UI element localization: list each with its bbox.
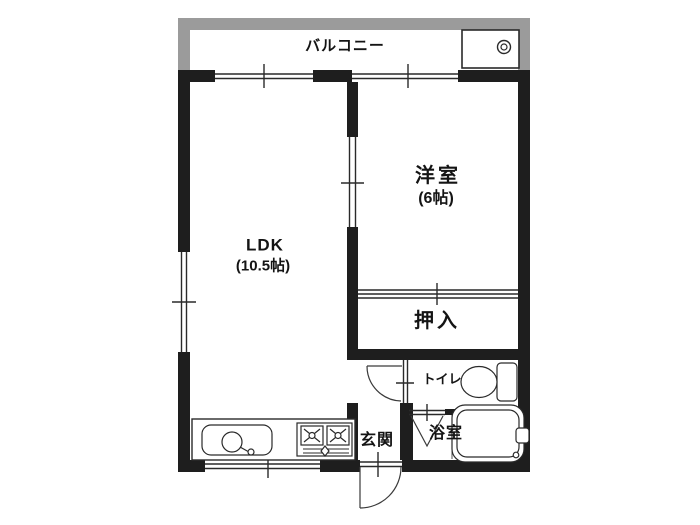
window-left-ldk-icon	[172, 252, 196, 352]
stove-icon	[297, 423, 352, 456]
wall-toilet-divider	[400, 403, 413, 460]
room-size-western-room: (6帖)	[418, 191, 454, 207]
wall-left-b	[178, 352, 190, 472]
toilet-icon	[461, 363, 517, 401]
sliding-door-ldk-western-icon	[341, 137, 364, 227]
wall-top-b	[313, 70, 352, 82]
bathroom-door-frame-icon	[409, 404, 445, 421]
wall-left-a	[178, 70, 190, 252]
room-label-ldk: LDK	[246, 237, 284, 254]
entry-door-swing-icon	[360, 467, 401, 508]
wall-bottom-a	[178, 460, 205, 472]
window-top-western-icon	[352, 64, 458, 88]
washing-machine-pan-icon	[462, 30, 519, 68]
window-top-ldk-icon	[215, 64, 313, 88]
room-label-closet: 押入	[414, 311, 460, 331]
kitchen-sink-icon	[202, 425, 272, 455]
fixtures	[192, 30, 529, 462]
room-label-entrance: 玄関	[360, 433, 394, 449]
room-label-western-room: 洋室	[415, 166, 461, 186]
room-label-toilet: トイレ	[422, 373, 461, 386]
wall-bottom-b	[320, 460, 360, 472]
entry-threshold-icon	[360, 452, 402, 477]
room-label-bathroom: 浴室	[429, 426, 463, 442]
room-label-balcony: バルコニー	[305, 39, 385, 54]
floor-plan: バルコニー 洋室 (6帖) LDK (10.5帖) 押入 トイレ 玄関 浴室	[0, 0, 700, 525]
wall-mid-a	[347, 82, 358, 137]
bathtub-icon	[452, 405, 529, 462]
wall-mid-b	[347, 227, 358, 360]
wall-closet-bottom	[347, 349, 518, 360]
sliding-door-closet-icon	[358, 283, 518, 305]
floor-plan-drawing	[0, 0, 700, 525]
room-size-ldk: (10.5帖)	[236, 259, 290, 274]
